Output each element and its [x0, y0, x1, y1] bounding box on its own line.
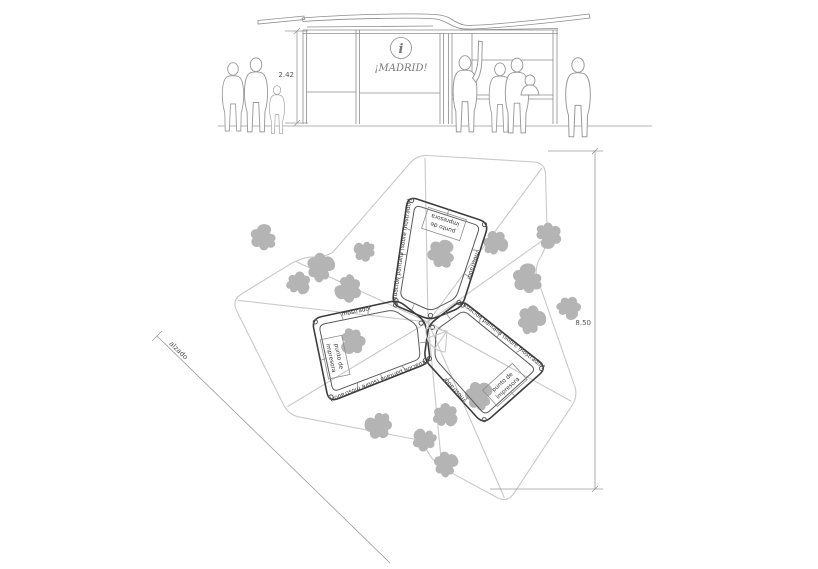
people-group-left: [222, 58, 284, 134]
floor-plan-drawing: punto de impresora mostrador situación p…: [152, 148, 620, 563]
person-tall-right: [566, 58, 591, 137]
info-icon: i: [391, 38, 412, 59]
section-line-label: alzado: [167, 340, 189, 362]
people-group-right: [489, 58, 528, 133]
architectural-drawing-page: i ¡MADRID! 2.42: [0, 0, 818, 569]
brand-text: ¡MADRID!: [374, 63, 427, 74]
height-dimension-value: 2.42: [278, 71, 294, 79]
plan-people-silhouettes: [247, 219, 583, 479]
info-symbol-glyph: i: [399, 42, 404, 57]
width-dimension-value: 8.50: [575, 319, 591, 327]
roof-canopy: [258, 14, 590, 30]
roof-footprint-lobe: [333, 155, 547, 322]
person-raised-arm: [453, 41, 482, 132]
elevation-drawing: i ¡MADRID! 2.42: [218, 14, 652, 137]
kiosk-drawing-svg: i ¡MADRID! 2.42: [0, 0, 818, 569]
printer-point-box: punto de impresora: [422, 207, 467, 240]
